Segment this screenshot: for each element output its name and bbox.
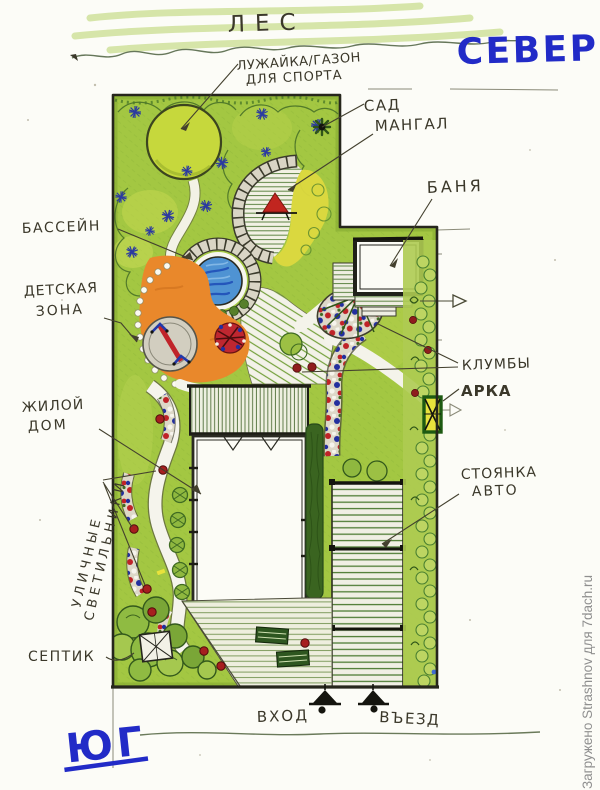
septic-tank — [140, 631, 173, 661]
landscape-plan-sketch: ЛЕС СЕВЕР ЛУЖАЙКА/ГАЗОН ДЛЯ СПОРТА САД М… — [0, 0, 600, 790]
septic-label: СЕПТИК — [28, 649, 95, 665]
arch-dimension-arrow — [450, 404, 461, 416]
round-flowerbed — [215, 323, 246, 353]
entrance-label: ВХОД — [257, 706, 310, 726]
driveway-label: ВЪЕЗД — [379, 708, 441, 729]
arch-gate — [424, 397, 441, 432]
pool-label: БАССЕЙН — [22, 216, 102, 237]
road-edge-line — [140, 732, 540, 735]
plot-ground — [109, 95, 437, 687]
kids-zone-label-line2: ЗОНА — [35, 301, 84, 319]
house-body — [193, 436, 306, 612]
house-label-line2: ДОМ — [27, 417, 68, 435]
house-label-line1: ЖИЛОЙ — [21, 395, 84, 416]
bbq-label: МАНГАЛ — [375, 114, 450, 135]
garden-label: САД — [364, 96, 402, 115]
forest-label: ЛЕС — [227, 9, 306, 38]
kids-zone-label-line1: ДЕТСКАЯ — [23, 280, 98, 300]
parking — [329, 479, 406, 687]
parking-label-line1: СТОЯНКА — [461, 464, 538, 483]
parking-label-line2: АВТО — [472, 482, 519, 500]
north-label: СЕВЕР — [456, 28, 599, 73]
arch-label: АРКА — [461, 382, 511, 400]
right-hedge-band — [403, 240, 437, 687]
bathhouse-label: БАНЯ — [426, 176, 484, 197]
watermark: Загружено Strashnov для 7dach.ru — [580, 575, 595, 789]
playground-pad — [143, 317, 197, 371]
house-side-hedge — [306, 424, 323, 599]
south-label-group: ЮГ — [64, 718, 149, 772]
flowerbeds-label: КЛУМБЫ — [462, 356, 532, 374]
house — [187, 385, 323, 631]
plan-canvas: ЛЕС СЕВЕР ЛУЖАЙКА/ГАЗОН ДЛЯ СПОРТА САД М… — [0, 0, 600, 790]
